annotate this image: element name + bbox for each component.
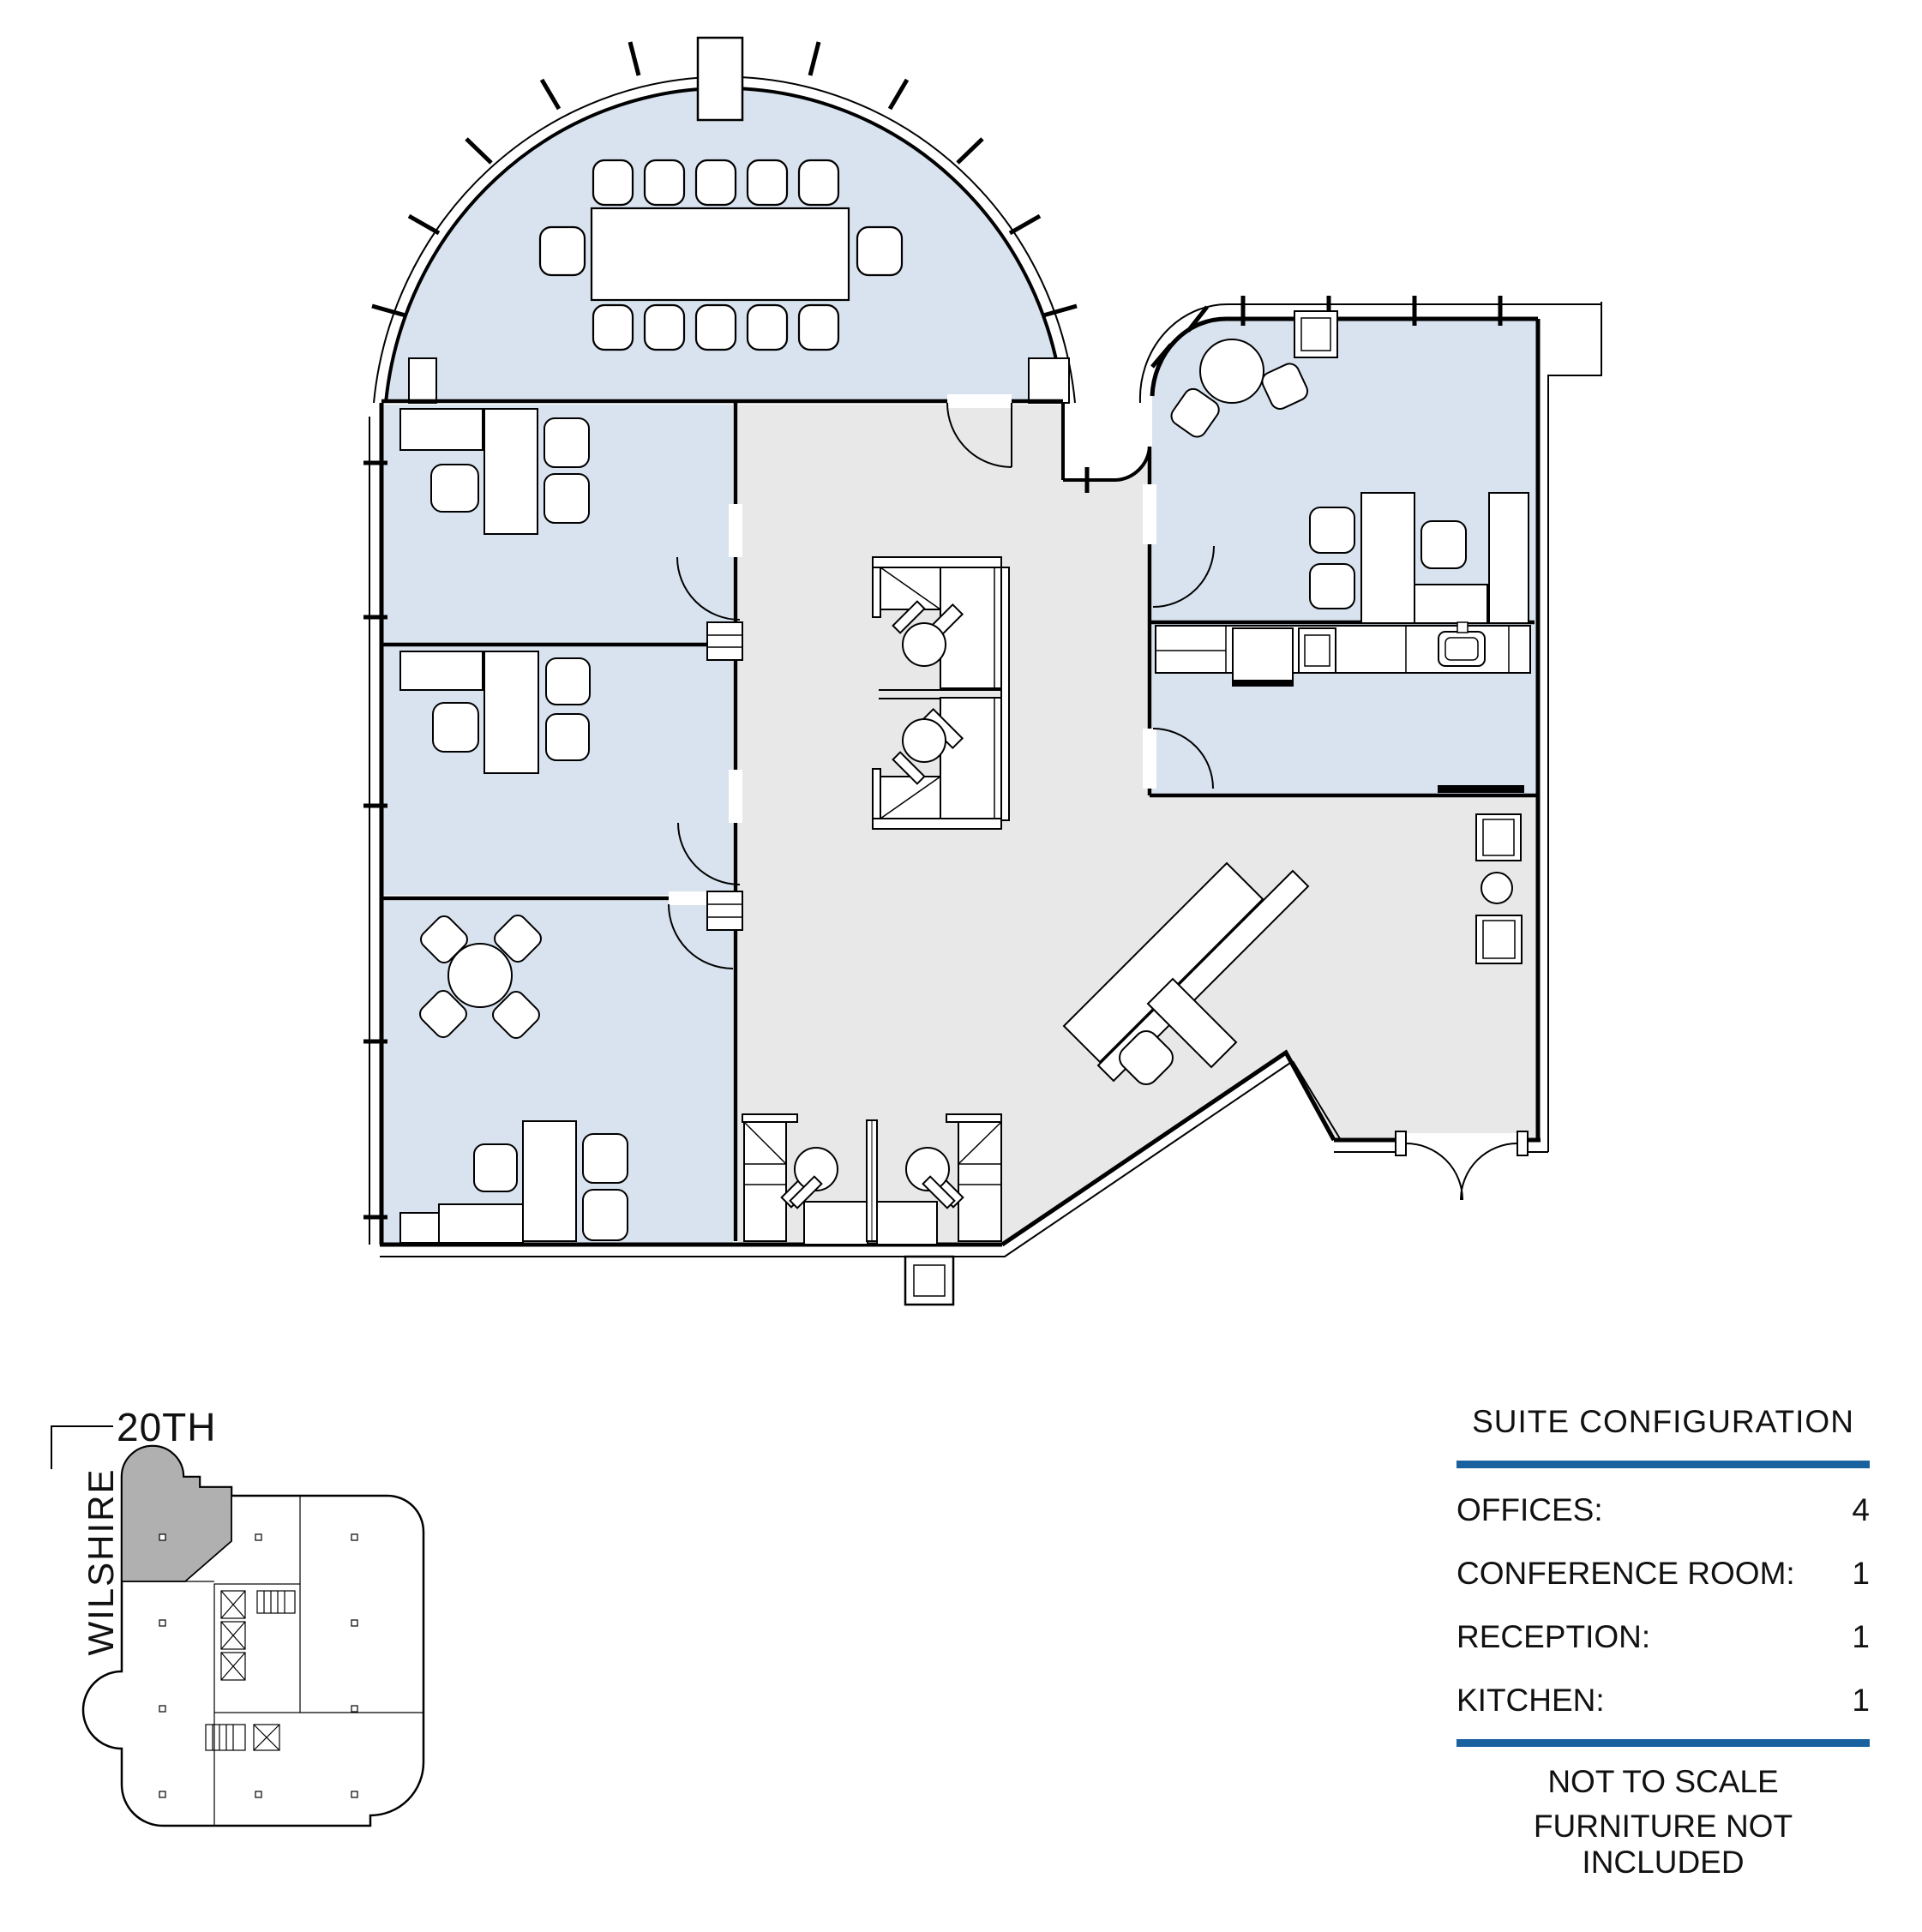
- note-not-to-scale: NOT TO SCALE: [1457, 1764, 1870, 1800]
- dome-apex-block: [698, 38, 742, 120]
- dome-right-base-block: [1029, 358, 1069, 403]
- street-label-wilshire: WILSHIRE: [81, 1462, 122, 1661]
- conference-table: [592, 208, 849, 300]
- config-label: RECEPTION:: [1457, 1619, 1650, 1655]
- config-row-reception: RECEPTION: 1: [1457, 1619, 1870, 1655]
- config-label: KITCHEN:: [1457, 1683, 1605, 1719]
- main-floor-plan: [363, 38, 1601, 1305]
- config-row-kitchen: KITCHEN: 1: [1457, 1683, 1870, 1719]
- kitchen-appliance: [1233, 628, 1293, 686]
- config-value: 1: [1852, 1556, 1870, 1592]
- suite-configuration-panel: SUITE CONFIGURATION OFFICES: 4 CONFERENC…: [1457, 1404, 1870, 1881]
- exterior-column-stub: [905, 1257, 953, 1305]
- config-value: 4: [1852, 1492, 1870, 1528]
- kitchen-black-bar: [1438, 785, 1524, 793]
- round-table: [1200, 339, 1264, 403]
- config-row-conference: CONFERENCE ROOM: 1: [1457, 1556, 1870, 1592]
- suite-configuration-title: SUITE CONFIGURATION: [1457, 1404, 1870, 1440]
- config-row-offices: OFFICES: 4: [1457, 1492, 1870, 1528]
- note-furniture: FURNITURE NOT INCLUDED: [1457, 1809, 1870, 1881]
- divider-rule-top: [1457, 1461, 1870, 1468]
- config-value: 1: [1852, 1619, 1870, 1655]
- config-value: 1: [1852, 1683, 1870, 1719]
- divider-rule-bottom: [1457, 1739, 1870, 1747]
- dome-left-base-block: [409, 358, 436, 403]
- config-label: CONFERENCE ROOM:: [1457, 1556, 1795, 1592]
- bottom-workstations: [742, 1114, 1001, 1245]
- side-table: [1481, 873, 1512, 903]
- street-label-20th: 20TH: [117, 1404, 216, 1450]
- config-label: OFFICES:: [1457, 1492, 1603, 1528]
